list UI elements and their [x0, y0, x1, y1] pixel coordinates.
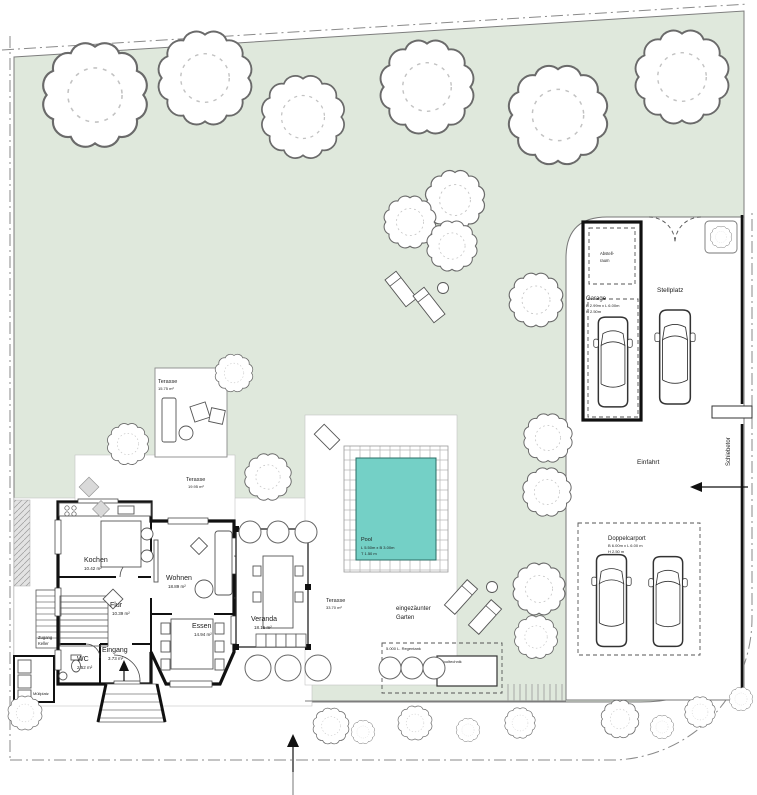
terrace-pool-area: 33.70 m² — [326, 605, 342, 610]
schiebetor-label: Schiebetor — [726, 437, 732, 466]
veranda-steps — [256, 634, 306, 647]
wohnen-area: 18.89 m² — [168, 584, 186, 589]
tree — [729, 687, 752, 710]
tree — [601, 700, 638, 737]
wohnen-label: Wohnen — [166, 575, 192, 582]
tree — [427, 221, 477, 271]
einfahrt-label: Einfahrt — [637, 459, 660, 466]
tree — [524, 414, 572, 462]
flur-label: Flur — [110, 602, 123, 609]
tree — [509, 273, 563, 327]
tree — [313, 708, 349, 744]
tree — [513, 563, 565, 615]
pool-group: Pool L 5.50m x B 3.00m T 1.50 m — [344, 446, 448, 572]
tree — [43, 43, 147, 147]
car-carport-left — [592, 555, 631, 647]
tree — [636, 31, 729, 124]
stellplatz-label: Stellplatz — [657, 287, 683, 294]
abstellraum-label-2: raum — [600, 258, 610, 263]
pool-dims-2: T 1.50 m — [361, 551, 377, 556]
terrace-pool-label: Terasse — [326, 598, 345, 604]
car-in-garage — [594, 317, 633, 407]
eingang-area: 3.73 m² — [108, 656, 124, 661]
car-carport-right — [649, 557, 688, 647]
tree — [107, 423, 148, 464]
tree — [159, 32, 252, 125]
entry-steps — [98, 684, 165, 722]
garage-group: Abstell- raum Garage B 2.99m x L 6.00m H… — [583, 222, 641, 420]
tree — [245, 454, 291, 500]
tree — [262, 76, 344, 158]
wc-area: 2.52 m² — [77, 665, 93, 670]
terrace-north-label: Terasse — [186, 477, 205, 483]
tree — [509, 66, 607, 164]
tree — [215, 354, 252, 391]
carport-label: Doppelcarport — [608, 536, 646, 542]
tree — [8, 696, 42, 730]
tree — [650, 715, 673, 738]
terrace-top-label: Terasse — [158, 379, 177, 385]
tree — [381, 41, 474, 134]
zugang-label-2: Keller — [38, 641, 49, 646]
planter-tree — [710, 226, 731, 247]
veranda-label: Veranda — [251, 616, 277, 623]
garage-dims-1: B 2.99m x L 6.00m — [586, 303, 620, 308]
essen-area: 14.94 m² — [194, 632, 212, 637]
veranda-area: 18.15 m² — [254, 625, 272, 630]
sliding-gate — [712, 406, 752, 418]
wc-label: WC — [77, 656, 89, 663]
site-plan: Pool L 5.50m x B 3.00m T 1.50 m 5.000 L.… — [0, 0, 757, 795]
garden-label-1: eingezäunter — [396, 606, 431, 612]
carport-dims-1: B 6.00m x L 6.00 m — [608, 543, 643, 548]
veranda-shrubs — [239, 521, 317, 543]
abstellraum-label-1: Abstell- — [600, 251, 615, 256]
zugang-label-1: Zugang — [38, 635, 53, 640]
essen-label: Essen — [192, 623, 212, 630]
tree — [398, 706, 432, 740]
planting-strip — [14, 500, 30, 586]
carport-dims-2: H 2.50 m — [608, 549, 625, 554]
muellplatz-label: Müllplatz — [33, 691, 49, 696]
entrance-arrow — [287, 734, 299, 795]
tree — [351, 720, 374, 743]
tree — [505, 708, 535, 738]
veranda-structure — [233, 521, 317, 650]
car-stellplatz — [655, 310, 695, 404]
site-plan-drawing: Pool L 5.50m x B 3.00m T 1.50 m 5.000 L.… — [0, 0, 757, 795]
terrace-top-area: 15.75 m² — [158, 386, 174, 391]
terrace-north-area: 19.95 m² — [188, 484, 204, 489]
garden-label-2: Garten — [396, 615, 414, 621]
tree — [456, 718, 479, 741]
tree — [685, 697, 715, 727]
regentank-label: 5.000 L. Regentank — [386, 646, 421, 651]
kochen-area: 10.42 m² — [84, 566, 102, 571]
tree — [515, 616, 558, 659]
flur-area: 10.39 m² — [112, 611, 130, 616]
muellplatz-group: Müllplatz — [14, 656, 54, 702]
pool-dims-1: L 5.50m x B 3.00m — [361, 545, 395, 550]
pool-label: Pool — [361, 537, 372, 543]
eingang-label: Eingang — [102, 647, 128, 654]
kochen-label: Kochen — [84, 557, 108, 564]
tree — [523, 468, 571, 516]
